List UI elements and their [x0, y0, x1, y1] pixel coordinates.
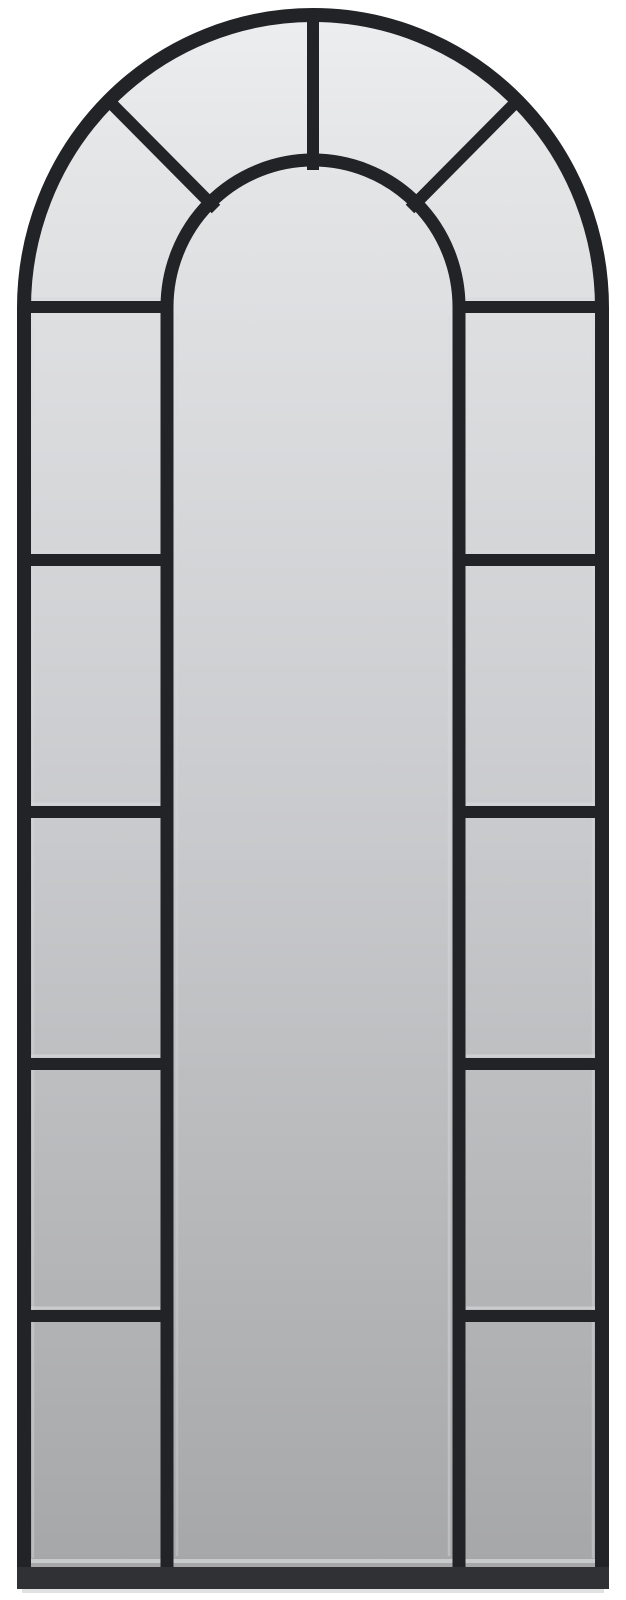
floor-shadow	[22, 1589, 604, 1593]
page-background: { "page": { "background": "#ffffff" }, "…	[0, 0, 626, 1600]
product-photo	[0, 0, 626, 1600]
mirror-glass	[17, 8, 609, 1588]
mirror	[0, 0, 626, 1600]
bottom-rail	[17, 1567, 609, 1589]
